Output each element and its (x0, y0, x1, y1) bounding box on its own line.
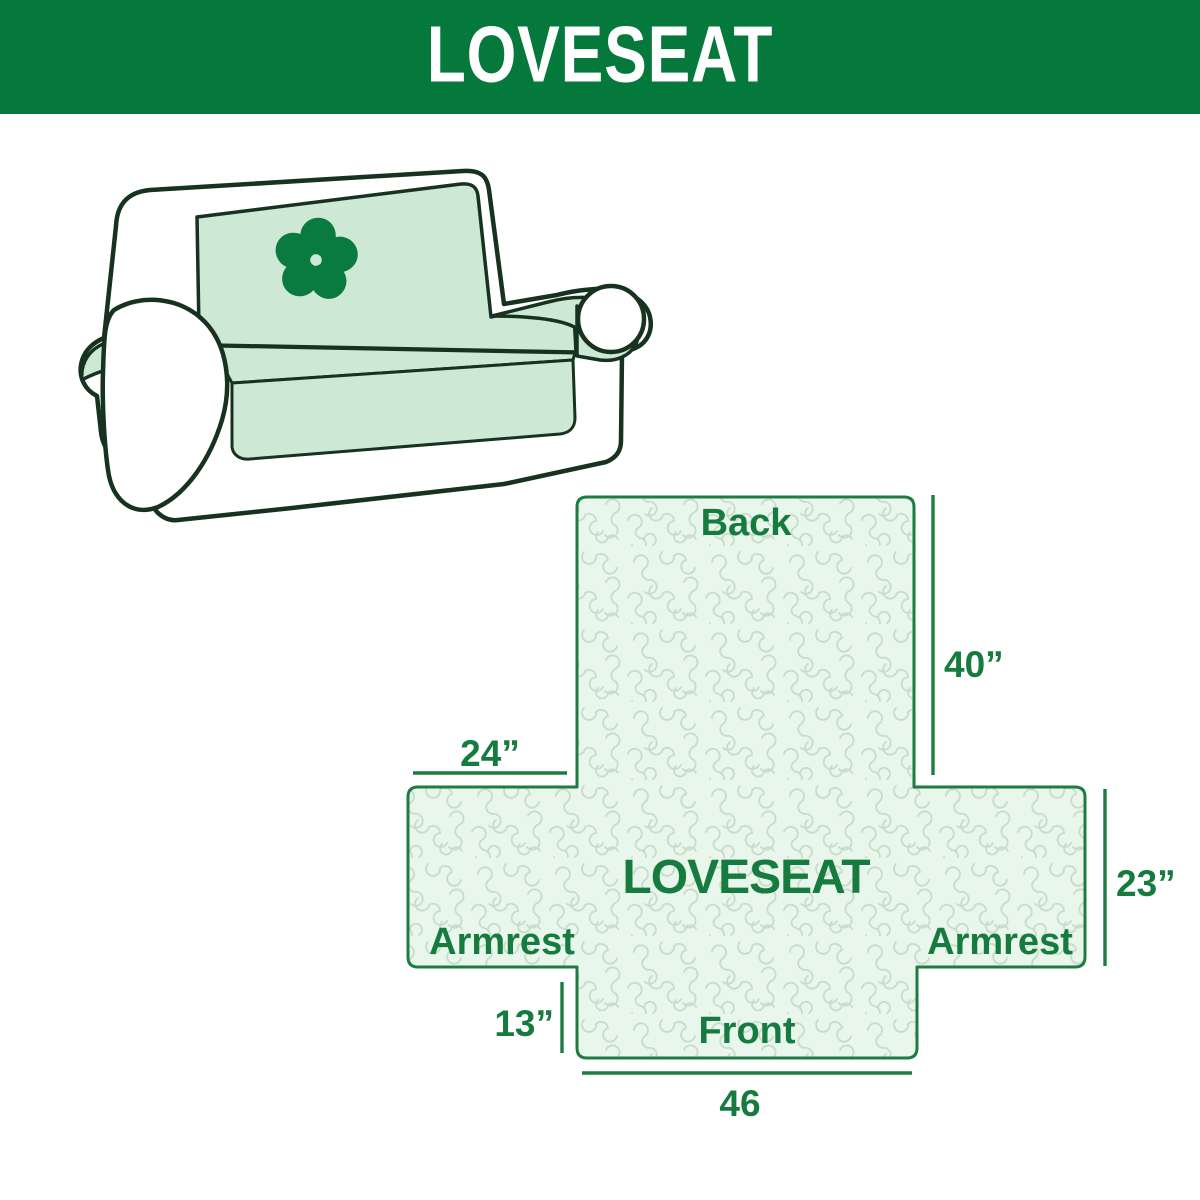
cover-outline (408, 497, 1085, 1058)
front-label: Front (698, 1010, 795, 1052)
armrest-right-label: Armrest (927, 921, 1073, 963)
back-label: Back (701, 502, 793, 544)
dimension-23-label: 23” (1116, 863, 1176, 904)
loveseat-illustration (81, 171, 651, 520)
infographic-page: LOVESEAT (0, 0, 1200, 1200)
dimension-13-label: 13” (494, 1003, 554, 1044)
dimension-24-label: 24” (460, 733, 520, 774)
center-label: LOVESEAT (622, 851, 870, 904)
artwork: Back LOVESEAT Armrest Armrest Front 24” … (0, 114, 1200, 1200)
right-arm-roll (578, 286, 644, 352)
dimension-40-label: 40” (944, 644, 1004, 685)
back-cover (197, 184, 576, 352)
dimension-diagram: Back LOVESEAT Armrest Armrest Front 24” … (408, 495, 1176, 1124)
header-banner: LOVESEAT (0, 0, 1200, 114)
armrest-left-label: Armrest (429, 921, 575, 963)
page-title: LOVESEAT (120, 15, 1080, 95)
dimension-46-label: 46 (719, 1083, 760, 1124)
